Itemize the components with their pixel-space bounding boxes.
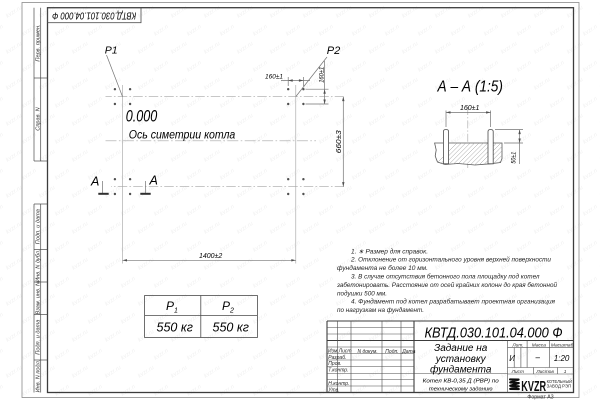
svg-text:Листов: Листов bbox=[535, 369, 554, 375]
svg-text:Подп. и дата: Подп. и дата bbox=[36, 209, 42, 244]
svg-text:Формат А3: Формат А3 bbox=[527, 394, 553, 400]
svg-text:160±1: 160±1 bbox=[460, 105, 480, 112]
svg-text:ЗАВОД РЭП: ЗАВОД РЭП bbox=[547, 384, 572, 389]
svg-text:550 кг: 550 кг bbox=[157, 321, 193, 335]
svg-text:фундамента не более 10 мм.: фундамента не более 10 мм. bbox=[337, 264, 428, 272]
svg-text:–: – bbox=[535, 353, 541, 362]
svg-text:установку: установку bbox=[435, 354, 487, 365]
svg-text:Инв. N дубл.: Инв. N дубл. bbox=[36, 250, 42, 282]
svg-text:Т.контр.: Т.контр. bbox=[328, 367, 348, 373]
svg-text:1:20: 1:20 bbox=[554, 354, 570, 363]
svg-text:Лист: Лист bbox=[511, 369, 524, 375]
svg-text:А: А bbox=[90, 175, 99, 189]
svg-text:Р1: Р1 bbox=[105, 44, 118, 56]
svg-text:КВТД.030.101.04.000 Ф: КВТД.030.101.04.000 Ф bbox=[425, 326, 563, 342]
svg-text:И: И bbox=[509, 354, 515, 363]
svg-text:Утв.: Утв. bbox=[328, 387, 339, 393]
svg-text:подушки 500 мм.: подушки 500 мм. bbox=[337, 289, 387, 297]
svg-text:Масштаб: Масштаб bbox=[551, 342, 574, 348]
svg-text:А: А bbox=[149, 174, 158, 188]
svg-text:по нагрузкам на фундамент.: по нагрузкам на фундамент. bbox=[337, 306, 424, 314]
svg-text:фундамента: фундамента bbox=[430, 363, 492, 375]
svg-text:А – А (1:5): А – А (1:5) bbox=[437, 79, 503, 96]
svg-text:Котел КВ-0,35 Д (РВР) по: Котел КВ-0,35 Д (РВР) по bbox=[423, 379, 500, 385]
svg-text:0.000: 0.000 bbox=[126, 108, 158, 126]
svg-text:550 кг: 550 кг bbox=[213, 321, 249, 335]
svg-text:Ось симетрии котла: Ось симетрии котла bbox=[129, 127, 236, 141]
svg-text:КВТД.030.101.04.000 Ф: КВТД.030.101.04.000 Ф bbox=[52, 10, 136, 21]
svg-text:2. Отклонение от горизонтально: 2. Отклонение от горизонтального уровня … bbox=[350, 256, 551, 264]
svg-text:KVZR: KVZR bbox=[521, 379, 546, 395]
svg-text:Лит.: Лит. bbox=[511, 342, 523, 348]
svg-text:Подп.: Подп. bbox=[385, 349, 398, 355]
svg-text:4. Фундамент под котел разраба: 4. Фундамент под котел разрабатывает про… bbox=[351, 298, 555, 306]
svg-text:забетонировать. Расстояние от: забетонировать. Расстояние от осей крайн… bbox=[336, 281, 557, 289]
svg-text:Перв. примен.: Перв. примен. bbox=[36, 24, 42, 61]
svg-text:Задание на: Задание на bbox=[434, 343, 488, 354]
svg-text:N докум.: N докум. bbox=[358, 349, 378, 355]
svg-text:Н.контр.: Н.контр. bbox=[328, 381, 349, 387]
svg-text:160±1: 160±1 bbox=[265, 74, 283, 81]
svg-text:Р2: Р2 bbox=[327, 45, 340, 57]
svg-text:50±1: 50±1 bbox=[511, 152, 518, 164]
svg-text:Подп. и дата: Подп. и дата bbox=[36, 320, 42, 355]
svg-text:Справ. N: Справ. N bbox=[36, 106, 42, 130]
svg-text:1. ∗ Размер для справок.: 1. ∗ Размер для справок. bbox=[351, 247, 428, 255]
svg-text:Дата: Дата bbox=[401, 349, 415, 355]
svg-text:Изм.Лист: Изм.Лист bbox=[328, 349, 352, 355]
svg-text:3. В случае отсутствия бетонно: 3. В случае отсутствия бетонного пола пл… bbox=[351, 273, 540, 281]
svg-text:Масса: Масса bbox=[532, 342, 547, 348]
svg-text:1400±2: 1400±2 bbox=[199, 253, 222, 260]
svg-text:Инв. N подл.: Инв. N подл. bbox=[36, 360, 42, 393]
svg-text:660±3: 660±3 bbox=[334, 130, 343, 153]
svg-text:техническому заданию: техническому заданию bbox=[429, 386, 493, 392]
svg-text:Пров.: Пров. bbox=[328, 361, 341, 367]
svg-text:Взам. инв. N: Взам. инв. N bbox=[36, 281, 42, 315]
svg-text:1: 1 bbox=[564, 369, 567, 375]
svg-text:160±1: 160±1 bbox=[318, 66, 325, 82]
